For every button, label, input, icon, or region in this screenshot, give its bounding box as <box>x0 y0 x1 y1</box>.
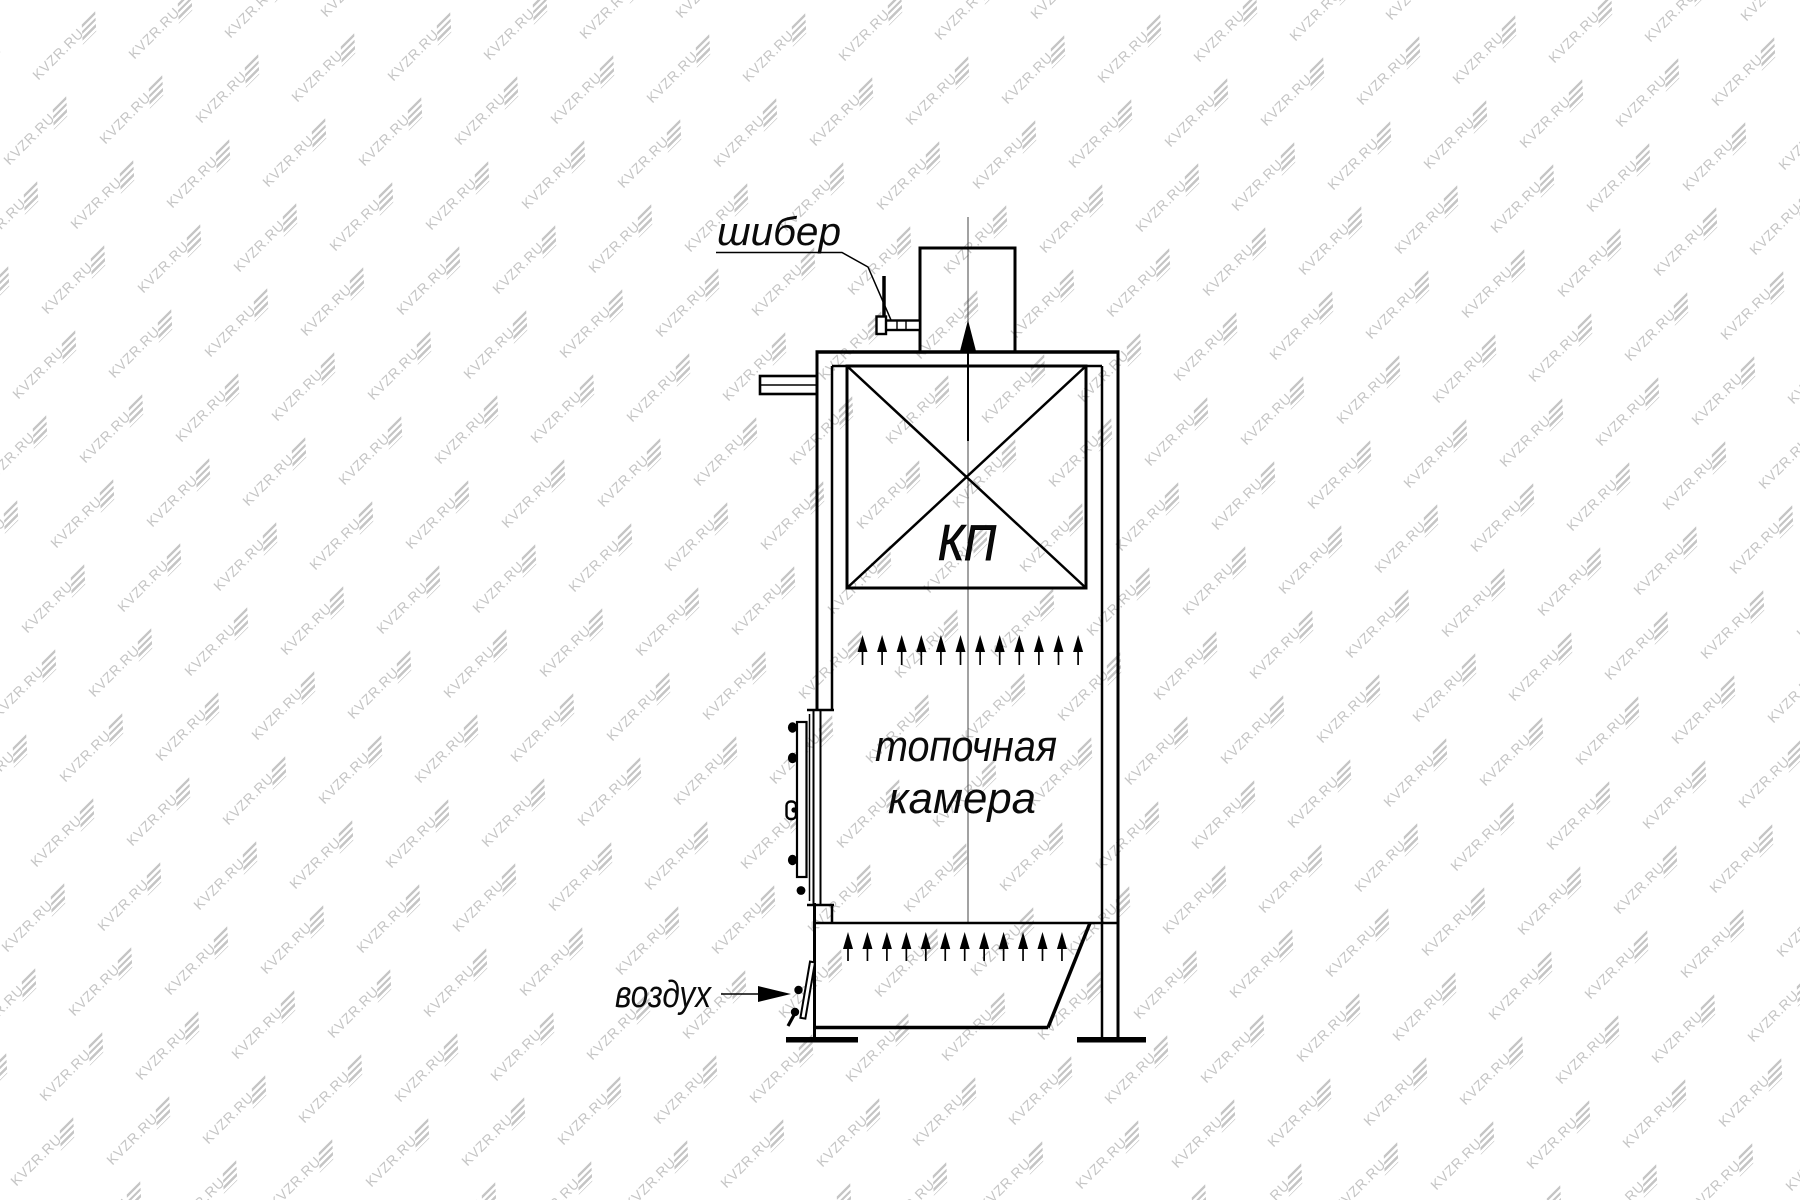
air-label-text: воздух <box>615 974 713 1016</box>
gas-flow-arrow-head <box>858 635 868 652</box>
gas-flow-arrow-head <box>897 635 907 652</box>
combustion-chamber-line1: топочная <box>875 722 1057 771</box>
boiler-diagram: шибер КП топочная камер <box>0 0 1800 1200</box>
air-flow-arrow-head <box>862 932 872 949</box>
combustion-chamber-line2: камера <box>888 774 1036 823</box>
air-flap-hinge-icon <box>794 986 802 994</box>
air-flow-arrow-head <box>843 932 853 949</box>
air-flow-arrow-head <box>1018 932 1028 949</box>
door-latch-icon <box>797 886 806 895</box>
air-flow-arrow-head <box>921 932 931 949</box>
kp-box: КП <box>847 366 1086 588</box>
damper-leader-line <box>716 253 891 321</box>
air-flow-arrow-head <box>1038 932 1048 949</box>
gas-flow-arrow-head <box>995 635 1005 652</box>
air-arrow-head <box>758 986 791 1002</box>
left-foot <box>786 1037 858 1043</box>
firebox-door <box>787 710 835 923</box>
gas-flow-arrow-head <box>1073 635 1083 652</box>
air-flow-arrow-head <box>882 932 892 949</box>
door-hinge-icon <box>788 753 797 763</box>
damper-label-text: шибер <box>717 210 841 254</box>
gas-flow-arrow-head <box>1054 635 1064 652</box>
air-flap <box>788 962 815 1026</box>
air-flow-arrow-head <box>979 932 989 949</box>
air-flow-arrows <box>843 932 1067 961</box>
door-frame <box>814 710 821 905</box>
door-hinge-icon <box>788 722 797 732</box>
flue-arrow-head <box>960 320 977 353</box>
hopper-slope <box>1048 923 1090 1028</box>
kp-label: КП <box>938 515 997 571</box>
combustion-chamber-label: топочная камера <box>875 722 1057 823</box>
air-label: воздух <box>615 974 791 1016</box>
damper-bolt-head <box>877 317 887 335</box>
door-handle-dot <box>791 807 796 812</box>
flue-arrow <box>960 320 977 441</box>
door-hinge-icon <box>788 855 797 865</box>
air-flow-arrow-head <box>999 932 1009 949</box>
air-flap-hinge-icon <box>791 1008 799 1016</box>
right-foot <box>1077 1037 1146 1043</box>
gas-flow-arrow-head <box>936 635 946 652</box>
damper-handle <box>877 276 921 334</box>
air-flow-arrow-head <box>1057 932 1067 949</box>
pipe-stub <box>760 376 817 394</box>
gas-flow-arrow-head <box>1034 635 1044 652</box>
gas-flow-arrow-head <box>975 635 985 652</box>
damper-bolt-shaft <box>885 321 920 331</box>
air-flow-arrow-head <box>940 932 950 949</box>
firebox-bottom <box>813 903 1118 1038</box>
gas-flow-arrow-head <box>916 635 926 652</box>
gas-flow-arrow-head <box>877 635 887 652</box>
gas-flow-arrow-head <box>956 635 966 652</box>
boiler-scheme-canvas: KVZR.RUKVZR.RUKVZR.RUKVZR.RUKVZR.RUKVZR.… <box>0 0 1800 1200</box>
damper-label: шибер <box>716 210 891 320</box>
air-flow-arrow-head <box>901 932 911 949</box>
gas-flow-arrow-head <box>1014 635 1024 652</box>
gas-flow-arrows <box>858 635 1084 665</box>
air-flap-tab <box>788 1015 794 1026</box>
door-panel <box>797 722 807 877</box>
air-flow-arrow-head <box>960 932 970 949</box>
